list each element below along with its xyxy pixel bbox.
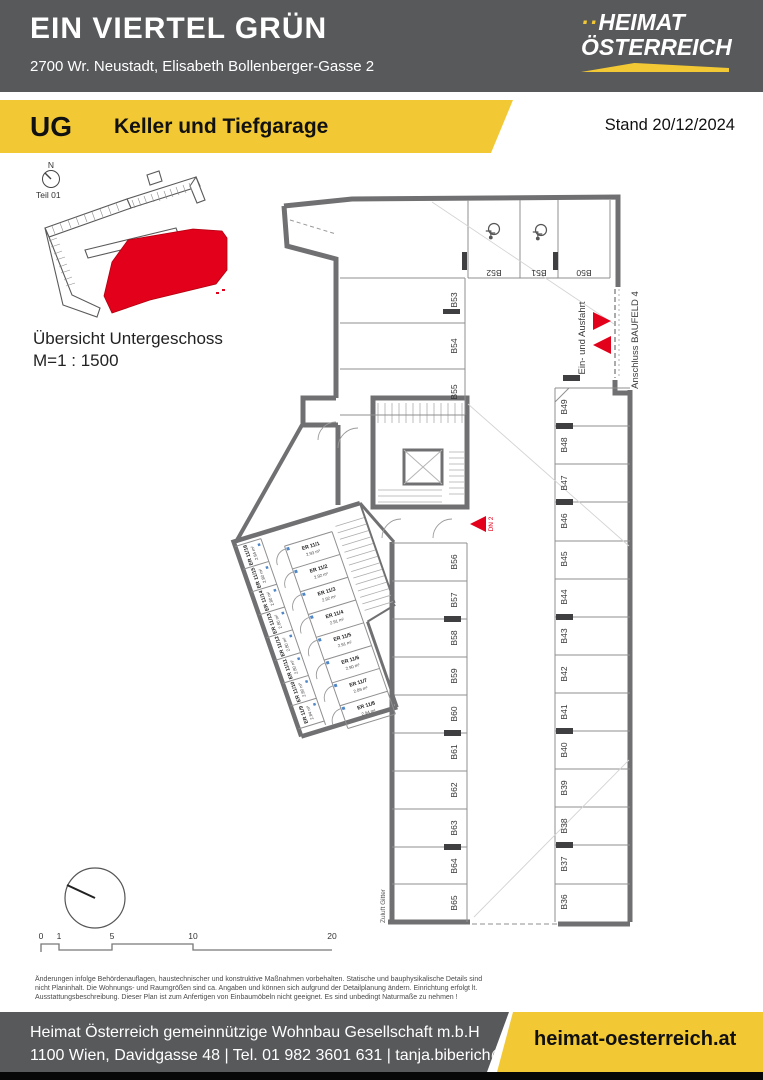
parking-spot-label: B46	[559, 513, 569, 528]
header-bar: EIN VIERTEL GRÜN 2700 Wr. Neustadt, Elis…	[0, 0, 763, 92]
parking-spot-label: B39	[559, 780, 569, 795]
storage-room-block: ER 11/1 2.93 m² ER 11/2 2.92 m² ER 11/3 …	[234, 503, 430, 742]
north-label: N	[48, 160, 54, 170]
baufeld-connection-label: Anschluss BAUFELD 4	[630, 291, 641, 389]
parking-spot-label: B36	[559, 894, 569, 909]
overview-red-mark	[216, 292, 219, 294]
parking-spot-label: B37	[559, 856, 569, 871]
floor-plan: DN 2 Ein- und Ausfahrt Anschluss BAUFELD…	[228, 190, 648, 935]
disclaimer-text: Änderungen infolge Behördenauflagen, hau…	[35, 975, 685, 1002]
parking-spot-label: B63	[449, 820, 459, 835]
parking-spot-label: B58	[449, 630, 459, 645]
wheelchair-icon	[533, 225, 547, 241]
footer-bar: Heimat Österreich gemeinnützige Wohnbau …	[0, 1012, 763, 1080]
parking-spot-label: B51	[531, 268, 546, 278]
north-arrow-needle	[45, 173, 51, 179]
parking-spot-label: B41	[559, 704, 569, 719]
scale-bar-steps	[41, 944, 332, 952]
logo-swoosh-shape	[581, 63, 729, 72]
footer-contact: 1100 Wien, Davidgasse 48 | Tel. 01 982 3…	[30, 1047, 551, 1065]
overview-scale: M=1 : 1500	[33, 351, 119, 371]
scale-tick-label: 10	[188, 931, 198, 941]
entry-exit-label: Ein- und Ausfahrt	[577, 301, 588, 374]
parking-spot-label: B56	[449, 554, 459, 569]
parking-spot-label: B40	[559, 742, 569, 757]
parking-spot-label: B42	[559, 666, 569, 681]
parking-spot-label: B61	[449, 744, 459, 759]
parking-spot-label: B64	[449, 858, 459, 873]
symbol-circle	[59, 862, 131, 934]
exit-arrow-icon	[593, 312, 611, 330]
drive-lane-guides	[432, 202, 629, 917]
footer-yellow-band: heimat-oesterreich.at	[494, 1012, 763, 1072]
door-dn2-label: DN 2	[488, 516, 495, 531]
parking-spot-label: B43	[559, 628, 569, 643]
parking-spot-label: B55	[449, 384, 459, 399]
parking-lines-left-upper	[340, 278, 465, 415]
logo-line-1: ··HEIMAT	[581, 10, 741, 35]
overview-red-mark	[222, 289, 225, 291]
scale-bar: 0 1 5 10 20	[36, 930, 346, 956]
scale-tick-label: 0	[39, 931, 44, 941]
disclaimer-line: Ausstattungsbeschreibung. Dieser Plan is…	[35, 993, 685, 1002]
logo-line-2: ÖSTERREICH	[581, 35, 741, 60]
wheelchair-icon	[486, 224, 500, 240]
parking-spot-label: B45	[559, 551, 569, 566]
footer-black-strip	[0, 1072, 763, 1080]
plan-document-page: EIN VIERTEL GRÜN 2700 Wr. Neustadt, Elis…	[0, 0, 763, 1080]
scale-tick-label: 1	[57, 931, 62, 941]
parking-spot-label: B38	[559, 818, 569, 833]
plan-date: Stand 20/12/2024	[605, 116, 735, 135]
level-code: UG	[30, 111, 72, 143]
ramp-slope-dashed-line	[290, 220, 336, 234]
level-title: Keller und Tiefgarage	[114, 115, 328, 139]
footer-company: Heimat Österreich gemeinnützige Wohnbau …	[30, 1024, 480, 1042]
entry-arrow-icon	[593, 336, 611, 354]
parking-spot-label: B49	[559, 399, 569, 414]
scale-tick-label: 5	[110, 931, 115, 941]
parking-spot-label: B52	[486, 268, 501, 278]
plan-walls	[236, 197, 630, 924]
heimat-oesterreich-logo: ··HEIMAT ÖSTERREICH	[581, 10, 741, 72]
disclaimer-line: nicht Planinhalt. Die Wohnungs- und Raum…	[35, 984, 685, 993]
footer-website: heimat-oesterreich.at	[534, 1028, 736, 1051]
level-banner: UG Keller und Tiefgarage Stand 20/12/202…	[0, 100, 763, 153]
parking-spot-label: B54	[449, 338, 459, 353]
overview-caption: Übersicht Untergeschoss	[33, 329, 223, 349]
door-dn2-arrow-icon	[470, 516, 486, 532]
parking-spot-label: B62	[449, 782, 459, 797]
stairwell	[373, 398, 467, 507]
overview-map: N Teil 01	[28, 158, 238, 333]
part-label: Teil 01	[36, 190, 61, 200]
project-title: EIN VIERTEL GRÜN	[30, 12, 327, 46]
parking-spot-label: B47	[559, 475, 569, 490]
logo-umlaut-dots: ··	[581, 9, 598, 35]
symbol-needle	[67, 885, 95, 898]
parking-spot-label: B53	[449, 292, 459, 307]
project-address: 2700 Wr. Neustadt, Elisabeth Bollenberge…	[30, 58, 374, 75]
parking-spot-label: B44	[559, 589, 569, 604]
parking-lines-right	[555, 375, 630, 922]
scale-tick-label: 20	[327, 931, 337, 941]
parking-spot-label: B57	[449, 592, 459, 607]
parking-spot-label: B60	[449, 706, 459, 721]
parking-spot-label: B59	[449, 668, 459, 683]
elevator-cross	[404, 450, 442, 484]
parking-spot-label: B48	[559, 437, 569, 452]
disclaimer-line: Änderungen infolge Behördenauflagen, hau…	[35, 975, 685, 984]
parking-spot-label: B65	[449, 895, 459, 910]
parking-spot-label: B50	[576, 268, 591, 278]
vent-grille-label: Zuluft Gitter	[380, 888, 387, 923]
